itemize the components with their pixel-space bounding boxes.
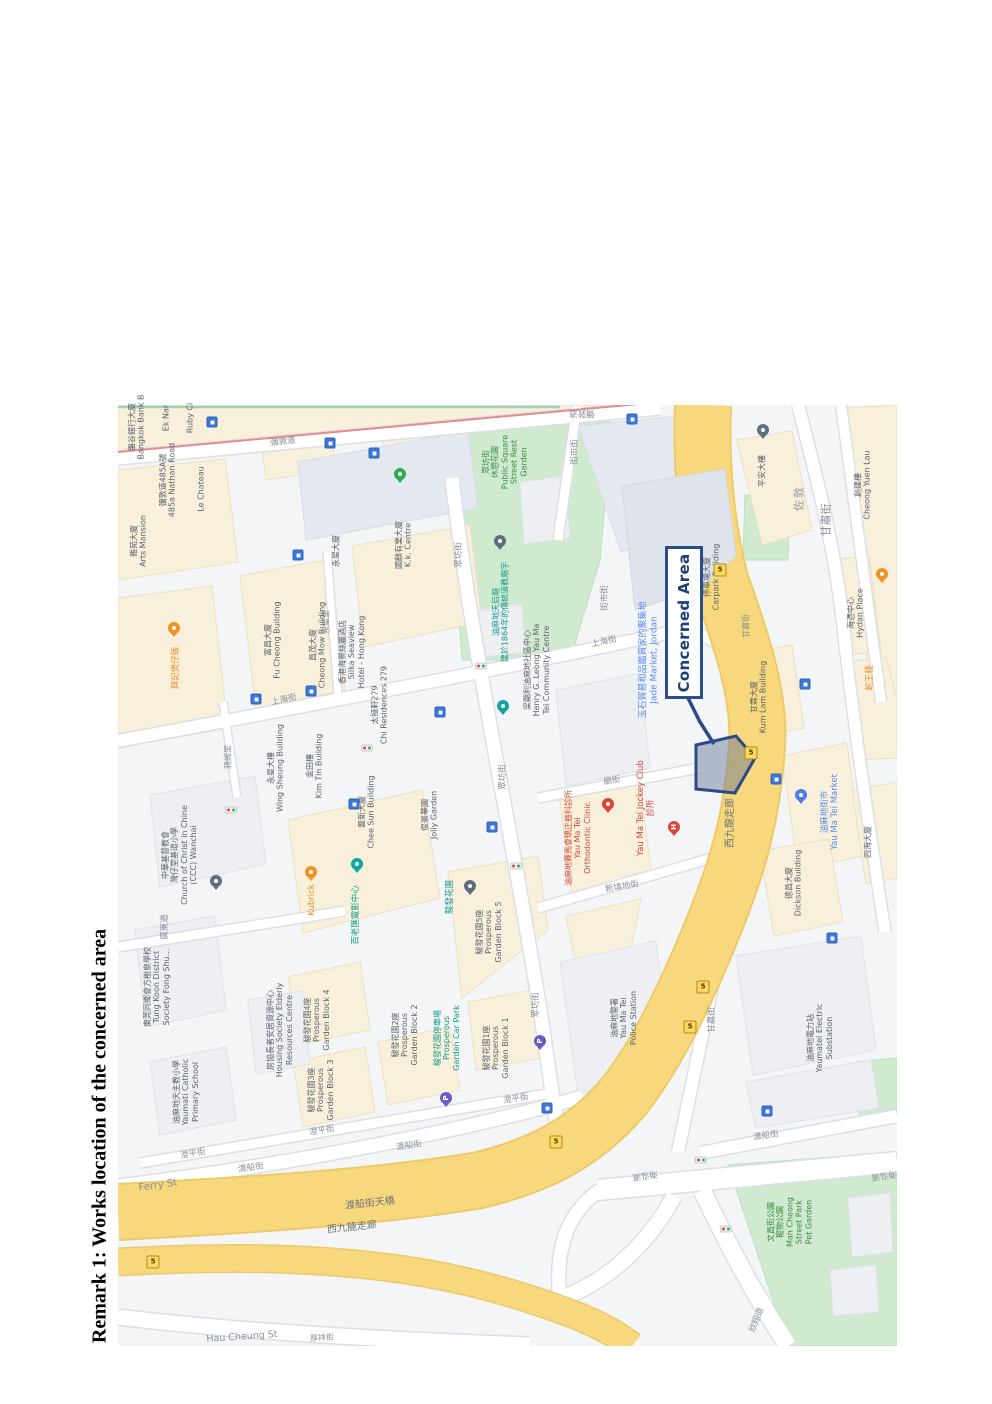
document-page: Remark 1: Works location of the concerne… — [0, 0, 992, 1404]
map-base-svg — [118, 405, 897, 1346]
remark-title: Remark 1: Works location of the concerne… — [89, 929, 112, 1343]
map-image — [118, 405, 897, 1346]
